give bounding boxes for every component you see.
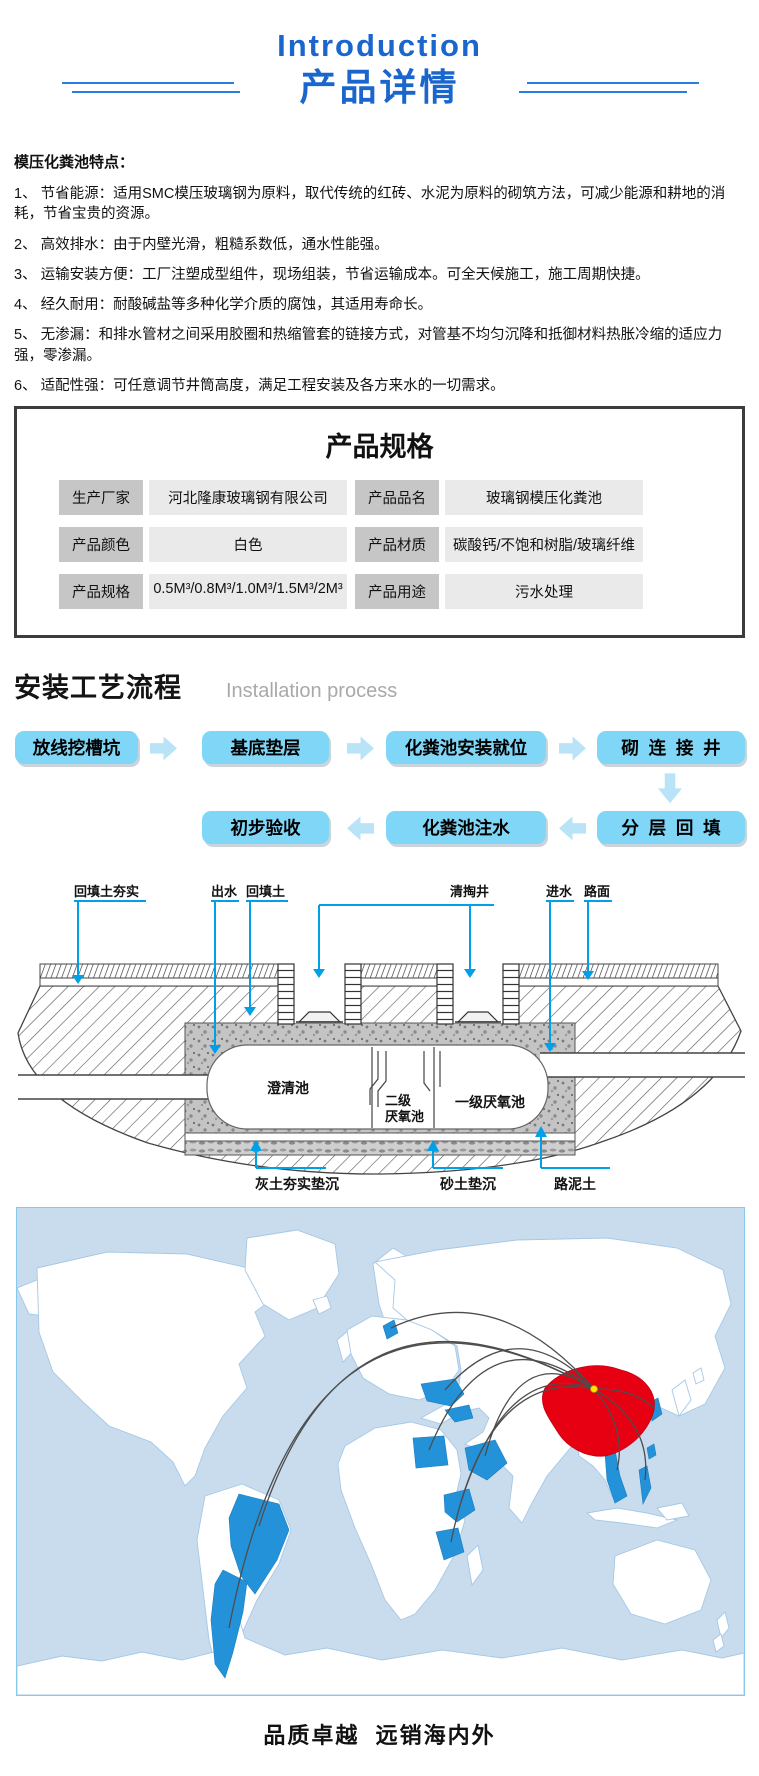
decor-line-left-2	[72, 91, 240, 93]
label-outlet: 出水	[211, 884, 238, 899]
spec-label: 产品用途	[355, 574, 439, 609]
septic-tank-cross-section-diagram: 澄清池 二级 厌氧池 一级厌氧池 回填土夯实 出水 回填土 清掏井 进水 路面 …	[0, 883, 759, 1195]
arrow-right-icon	[150, 736, 177, 760]
label-lime-cushion: 灰土夯实垫沉	[255, 1176, 339, 1192]
feature-item: 4、 经久耐用：耐酸碱盐等多种化学介质的腐蚀，其适用寿命长。	[14, 295, 745, 315]
flow-step-4: 砌 连 接 井	[597, 731, 745, 764]
spec-value: 玻璃钢模压化粪池	[445, 480, 643, 515]
installation-flowchart: 放线挖槽坑 基底垫层 化粪池安装就位 砌 连 接 井 初步验收 化粪池注水 分 …	[0, 719, 759, 845]
sand-cushion	[185, 1141, 575, 1155]
spec-label: 生产厂家	[59, 480, 143, 515]
lime-soil-cushion	[185, 1133, 575, 1141]
feature-item: 1、 节省能源：适用SMC模压玻璃钢为原料，取代传统的红砖、水泥为原料的砌筑方法…	[14, 184, 745, 225]
spec-row: 生产厂家 河北隆康玻璃钢有限公司 产品品名 玻璃钢模压化粪池	[59, 480, 742, 515]
spec-label: 产品品名	[355, 480, 439, 515]
label-cleanout-well: 清掏井	[450, 884, 489, 899]
label-road-soil: 路泥土	[554, 1176, 596, 1192]
world-export-map	[16, 1207, 745, 1696]
label-sand-cushion: 砂土垫沉	[439, 1176, 496, 1192]
section-title-zh: 安装工艺流程	[14, 666, 182, 705]
spec-value: 碳酸钙/不饱和树脂/玻璃纤维	[445, 527, 643, 562]
export-map-section	[16, 1207, 743, 1696]
label-secondary-anaerobic-line2: 厌氧池	[385, 1109, 424, 1124]
header-title-en: Introduction	[0, 30, 759, 61]
flow-step-3: 化粪池安装就位	[386, 731, 546, 764]
arrow-down-icon	[658, 773, 682, 803]
flow-step-5: 分 层 回 填	[597, 811, 745, 844]
feature-item: 2、 高效排水：由于内壁光滑，粗糙系数低，通水性能强。	[14, 235, 745, 255]
section-title-en: Installation process	[226, 680, 397, 703]
flow-step-6: 化粪池注水	[386, 811, 546, 844]
page-header: Introduction 产品详情	[0, 0, 759, 135]
flow-step-1: 放线挖槽坑	[15, 731, 138, 764]
spec-label: 产品材质	[355, 527, 439, 562]
footer-slogan: 品质卓越 远销海内外	[0, 1718, 759, 1750]
decor-line-right-2	[519, 91, 687, 93]
arrow-left-icon	[559, 816, 586, 840]
label-road-surface: 路面	[584, 884, 610, 899]
spec-value: 0.5M³/0.8M³/1.0M³/1.5M³/2M³	[149, 574, 347, 609]
spec-value: 白色	[149, 527, 347, 562]
spec-value: 污水处理	[445, 574, 643, 609]
decor-line-right-1	[527, 82, 699, 84]
label-primary-anaerobic: 一级厌氧池	[455, 1094, 525, 1110]
spec-row: 产品规格 0.5M³/0.8M³/1.0M³/1.5M³/2M³ 产品用途 污水…	[59, 574, 742, 609]
arrow-right-icon	[347, 736, 374, 760]
road-surface-layer	[40, 964, 718, 986]
spec-pair: 产品材质 碳酸钙/不饱和树脂/玻璃纤维	[355, 527, 643, 562]
feature-item: 5、 无渗漏：和排水管材之间采用胶圈和热缩管套的链接方式，对管基不均匀沉降和抵御…	[14, 325, 745, 366]
feature-list: 模压化粪池特点： 1、 节省能源：适用SMC模压玻璃钢为原料，取代传统的红砖、水…	[14, 151, 745, 396]
spec-pair: 产品规格 0.5M³/0.8M³/1.0M³/1.5M³/2M³	[59, 574, 347, 609]
spec-pair: 产品用途 污水处理	[355, 574, 643, 609]
spec-label: 产品颜色	[59, 527, 143, 562]
feature-heading: 模压化粪池特点：	[14, 151, 745, 172]
spec-label: 产品规格	[59, 574, 143, 609]
spec-title: 产品规格	[17, 425, 742, 464]
label-backfill: 回填土	[246, 884, 285, 899]
feature-item: 6、 适配性强：可任意调节井筒高度，满足工程安装及各方来水的一切需求。	[14, 376, 745, 396]
label-inlet: 进水	[546, 884, 573, 899]
spec-table: 产品规格 生产厂家 河北隆康玻璃钢有限公司 产品品名 玻璃钢模压化粪池 产品颜色…	[14, 406, 745, 638]
label-clarification-tank: 澄清池	[267, 1080, 309, 1096]
flow-step-7: 初步验收	[202, 811, 329, 844]
spec-row: 产品颜色 白色 产品材质 碳酸钙/不饱和树脂/玻璃纤维	[59, 527, 742, 562]
label-backfill-compaction: 回填土夯实	[74, 884, 139, 899]
inlet-pipe	[540, 1053, 745, 1077]
flow-step-2: 基底垫层	[202, 731, 329, 764]
feature-item: 3、 运输安装方便：工厂注塑成型组件，现场组装，节省运输成本。可全天候施工，施工…	[14, 265, 745, 285]
country-egypt	[413, 1436, 448, 1468]
outlet-pipe	[18, 1075, 214, 1099]
decor-line-left-1	[62, 82, 234, 84]
spec-pair: 生产厂家 河北隆康玻璃钢有限公司	[59, 480, 347, 515]
arrow-left-icon	[347, 816, 374, 840]
arrow-right-icon	[559, 736, 586, 760]
origin-dot	[591, 1386, 598, 1393]
spec-pair: 产品品名 玻璃钢模压化粪池	[355, 480, 643, 515]
label-secondary-anaerobic-line1: 二级	[385, 1093, 412, 1108]
spec-pair: 产品颜色 白色	[59, 527, 347, 562]
section-heading-installation: 安装工艺流程 Installation process	[14, 666, 759, 705]
page-title: 产品详情	[0, 69, 759, 106]
spec-value: 河北隆康玻璃钢有限公司	[149, 480, 347, 515]
